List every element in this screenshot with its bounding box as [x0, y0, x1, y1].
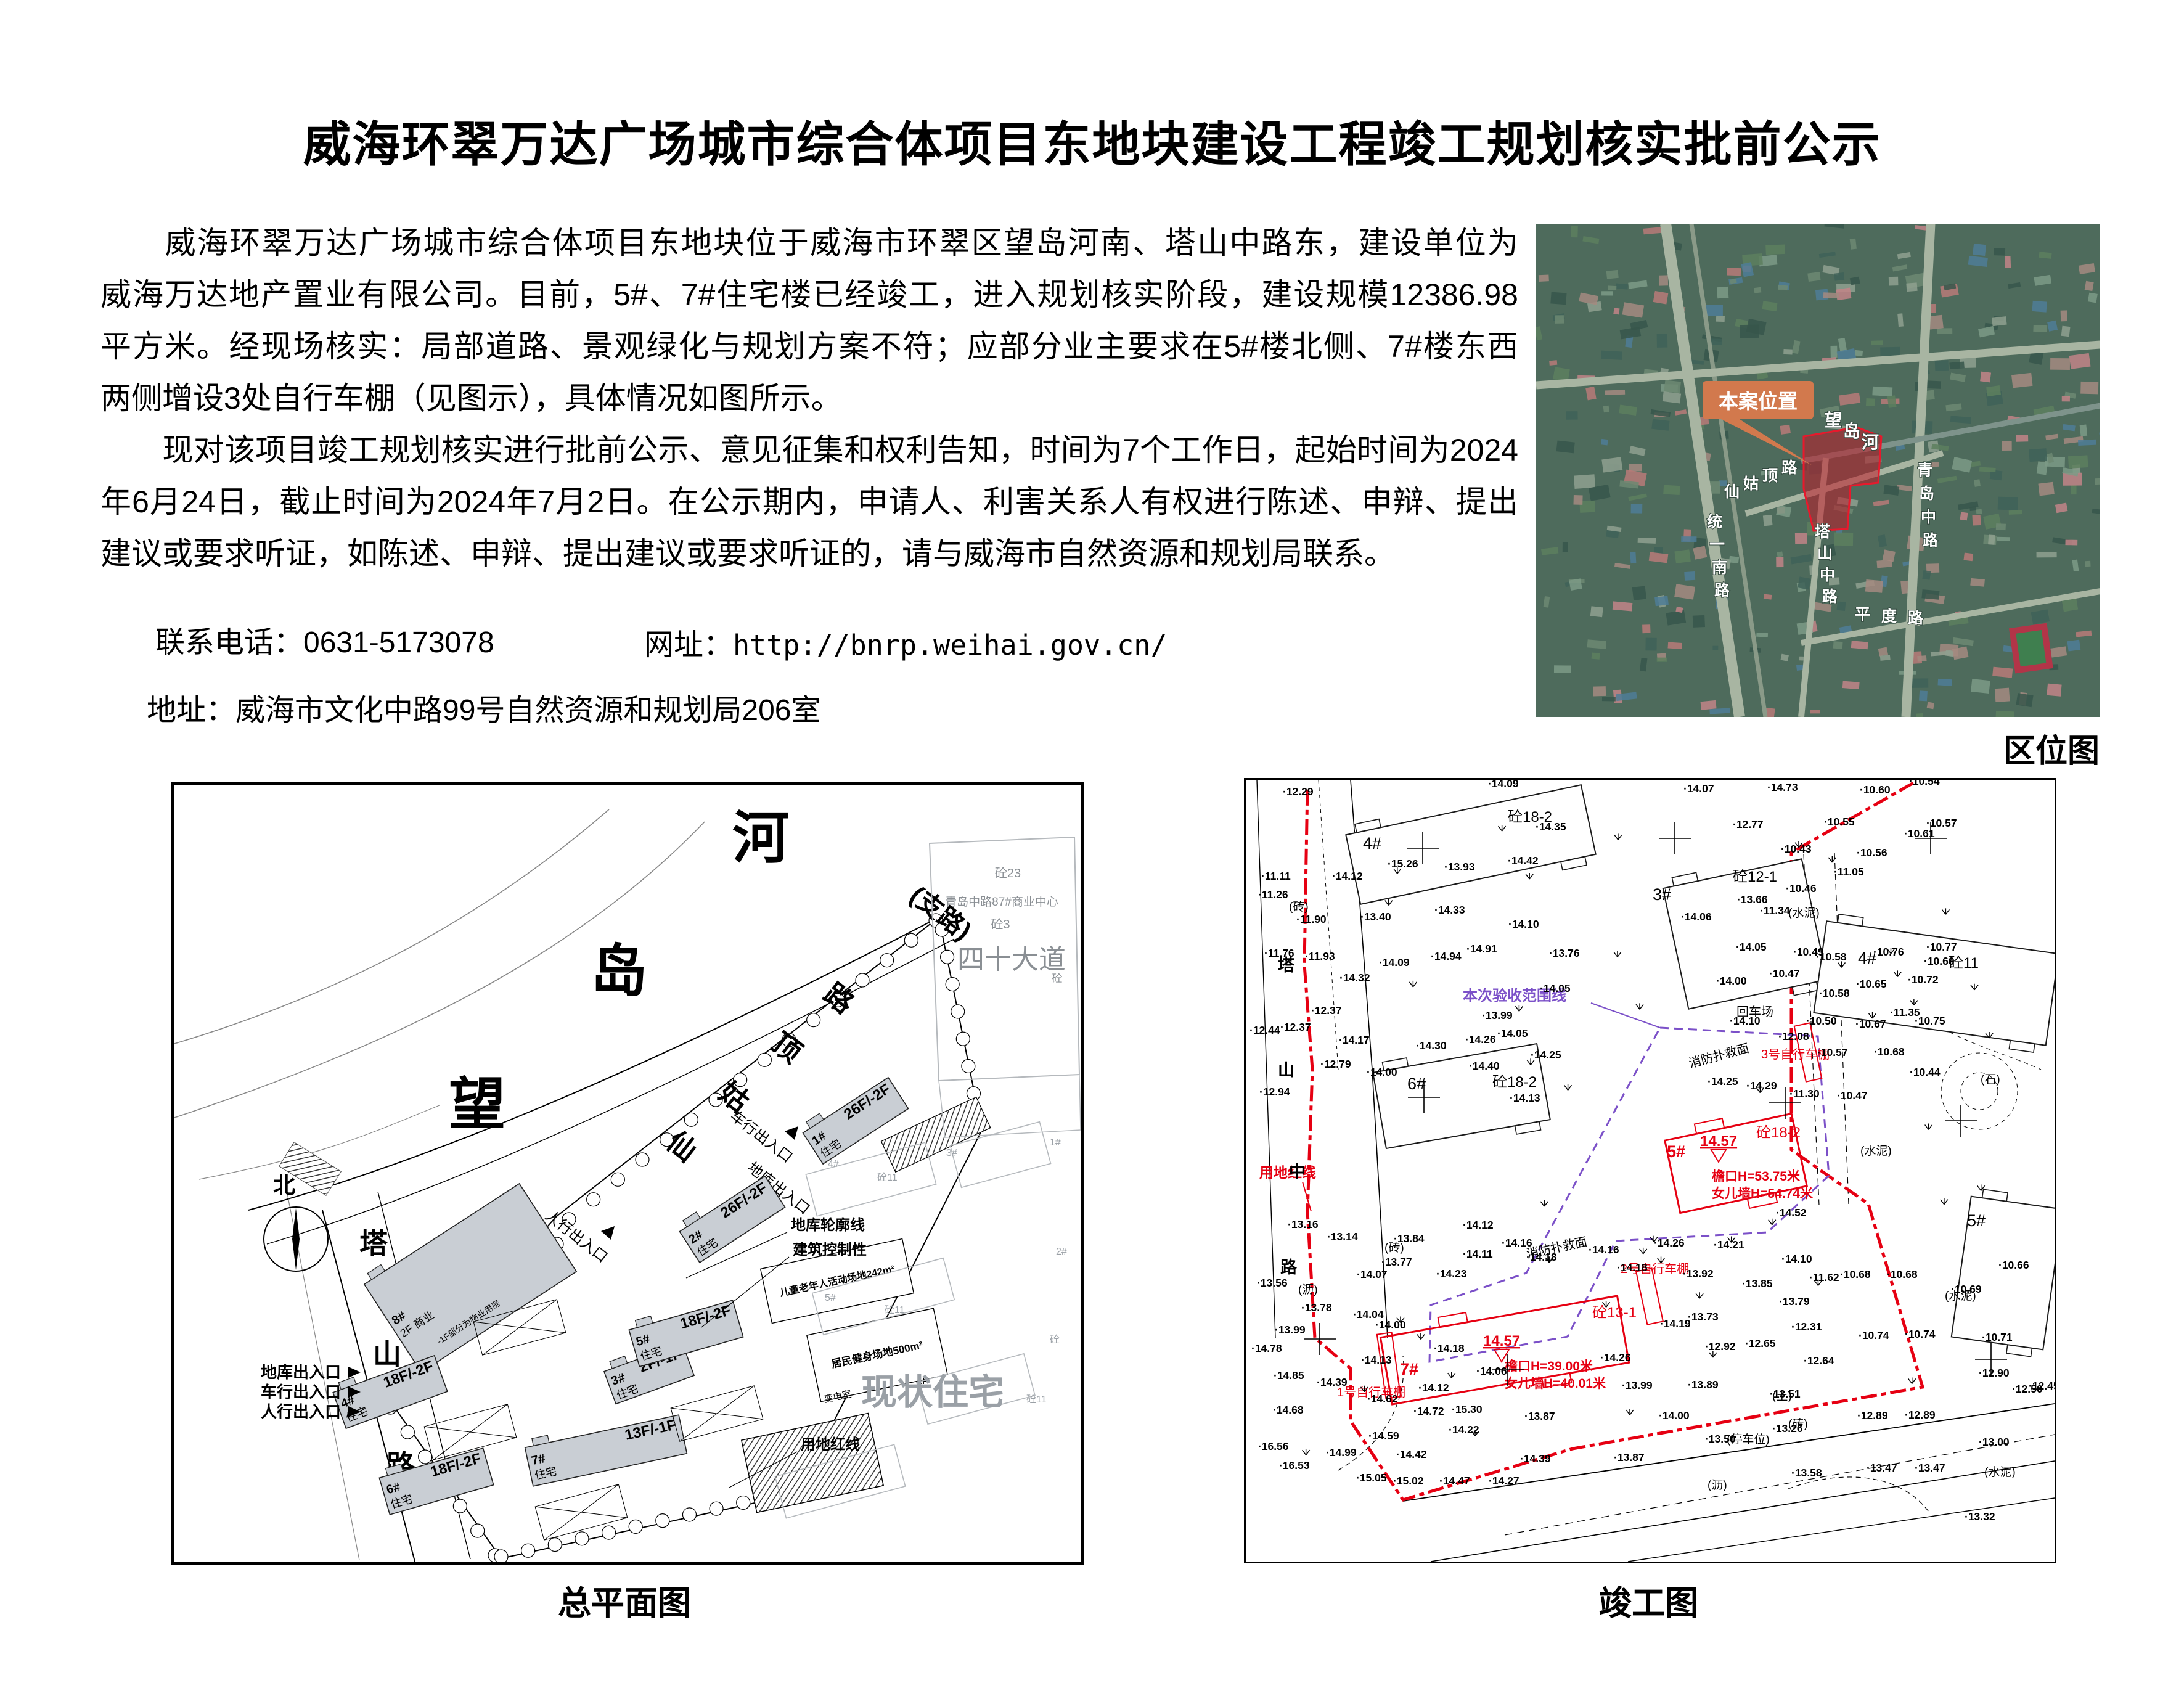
spot-elevation: ·10.56 [1857, 846, 1887, 859]
spot-elevation: ·14.09 [1379, 956, 1410, 968]
spot-elevation: ·12.77 [1733, 818, 1764, 830]
spot-elevation: ·12.08 [1778, 1030, 1809, 1042]
plan-callout-label: 建筑控制性 [793, 1241, 867, 1258]
river-label: 望 [449, 1073, 505, 1136]
spot-elevation: ·12.37 [1280, 1021, 1311, 1033]
spot-elevation: ·14.62 [1367, 1393, 1398, 1405]
spot-elevation: ·11.90 [1296, 913, 1327, 925]
spot-elevation: ·10.67 [1855, 1018, 1886, 1030]
map-road-label: 岛 [1843, 421, 1860, 441]
spot-elevation: ·13.58 [1791, 1467, 1822, 1479]
spot-elevation: ·14.73 [1767, 781, 1798, 793]
spot-elevation: ·10.43 [1781, 843, 1812, 855]
spot-elevation: ·13.89 [1688, 1378, 1719, 1391]
svg-text:14.57: 14.57 [1483, 1333, 1520, 1349]
spot-elevation: ·13.84 [1394, 1232, 1425, 1245]
paragraph-line: 年6月24日，截止时间为2024年7月2日。在公示期内，申请人、利害关系人有权进… [100, 476, 1518, 528]
surface-material-label: (石) [1981, 1073, 2000, 1086]
spot-elevation: ·14.12 [1332, 870, 1363, 882]
spot-elevation: ·13.92 [1683, 1267, 1714, 1280]
spot-elevation: ·10.47 [1837, 1089, 1868, 1102]
spot-elevation: ·14.10 [1730, 1015, 1761, 1027]
spot-elevation: ·10.44 [1910, 1066, 1941, 1078]
svg-text:7#: 7# [530, 1452, 546, 1468]
spot-elevation: ·12.94 [1259, 1086, 1290, 1098]
spot-elevation: ·12.29 [1283, 785, 1314, 798]
map-road-label: 平 [1855, 606, 1870, 623]
map-road-label: 山 [1817, 545, 1833, 562]
spot-elevation: ·14.42 [1508, 854, 1539, 867]
spot-elevation: ·13.87 [1614, 1451, 1645, 1464]
svg-text:檐口H=39.00米: 檐口H=39.00米 [1505, 1359, 1593, 1374]
spot-elevation: ·14.17 [1339, 1034, 1370, 1046]
spot-elevation: ·14.06 [1681, 911, 1712, 923]
spot-elevation: ·14.72 [1413, 1405, 1444, 1417]
public-notice-page: { "doc": { "title": "威海环翠万达广场城市综合体项目东地块建… [0, 0, 2184, 1699]
neighbor-label: 砼23 [995, 866, 1021, 880]
spot-elevation: ·14.16 [1502, 1237, 1532, 1249]
asbuilt-caption: 竣工图 [1244, 1576, 2053, 1624]
neighbor-house-label: 3# [946, 1148, 957, 1158]
spot-elevation: ·14.40 [1469, 1060, 1500, 1072]
spot-elevation: ·15.02 [1393, 1475, 1424, 1487]
contact-address: 地址：威海市文化中路99号自然资源和规划局206室 [147, 686, 820, 729]
paragraph-line: 威海环翠万达广场城市综合体项目东地块位于威海市环翠区望岛河南、塔山中路东，建设单… [100, 217, 1518, 269]
spot-elevation: ·11.93 [1305, 950, 1335, 962]
spot-elevation: ·15.05 [1356, 1472, 1387, 1484]
spot-elevation: ·10.61 [1904, 827, 1935, 840]
spot-elevation: ·14.99 [1326, 1446, 1357, 1459]
map-road-label: 望 [1825, 411, 1842, 430]
spot-elevation: ·13.50 [1705, 1433, 1736, 1445]
road-label: 中 [1289, 1163, 1306, 1181]
entrance-label: 车行出入口 [261, 1383, 341, 1401]
spot-elevation: ·10.65 [1856, 978, 1887, 990]
spot-elevation: ·12.45 [2029, 1380, 2055, 1392]
map-road-label: 中 [1921, 509, 1936, 526]
spot-elevation: ·13.77 [1381, 1256, 1412, 1268]
spot-elevation: ·10.58 [1816, 951, 1847, 963]
spot-elevation: ·10.55 [1824, 816, 1855, 828]
map-road-label: 统 [1707, 513, 1722, 531]
spot-elevation: ·13.93 [1444, 861, 1475, 873]
map-road-label: 路 [1923, 532, 1939, 549]
plan-building-2#: 2#住宅26F/-2F [676, 1170, 785, 1263]
map-road-label: 度 [1881, 607, 1897, 625]
spot-elevation: ·13.99 [1622, 1379, 1653, 1391]
spot-elevation: ·14.26 [1654, 1237, 1685, 1249]
spot-elevation: ·14.00 [1659, 1409, 1690, 1422]
spot-elevation: ·14.05 [1497, 1027, 1528, 1039]
neighbor-house-label: 2# [1056, 1247, 1067, 1257]
website-url[interactable]: http://bnrp.weihai.gov.cn/ [733, 629, 1167, 661]
spot-elevation: ·12.44 [1249, 1024, 1280, 1036]
spot-elevation: ·15.26 [1388, 858, 1418, 870]
spot-elevation: ·14.85 [1274, 1369, 1304, 1382]
spot-elevation: ·12.37 [1311, 1004, 1342, 1017]
spot-elevation: ·14.00 [1375, 1319, 1406, 1331]
plan-callout-label: 地库轮廓线 [791, 1216, 865, 1234]
svg-text:女儿墙H=40.01米: 女儿墙H=40.01米 [1505, 1376, 1606, 1391]
spot-elevation: ·14.07 [1357, 1268, 1388, 1280]
spot-elevation: ·14.18 [1434, 1342, 1465, 1354]
spot-elevation: ·14.13 [1510, 1092, 1540, 1104]
entrance-label: 地库出入口 [261, 1363, 341, 1382]
spot-elevation: ·14.25 [1531, 1049, 1561, 1061]
surface-material-label: (水泥) [1788, 906, 1820, 920]
map-road-label: 顶 [1762, 467, 1778, 485]
spot-elevation: ·16.53 [1279, 1459, 1310, 1472]
svg-text:3#: 3# [1653, 885, 1671, 904]
spot-elevation: ·10.77 [1926, 941, 1957, 953]
spot-elevation: ·14.07 [1683, 782, 1714, 795]
neighbor-house-label: 砼11 [885, 1304, 905, 1316]
spot-elevation: ·10.57 [1817, 1046, 1848, 1058]
neighbor-label: 砼3 [991, 917, 1010, 931]
spot-elevation: ·14.12 [1463, 1219, 1494, 1231]
road-label: 塔 [359, 1227, 388, 1259]
map-road-label: 路 [1781, 459, 1798, 477]
spot-elevation: ·13.51 [1770, 1388, 1801, 1400]
paragraph-line: 两侧增设3处自行车棚（见图示），具体情况如图所示。 [100, 372, 1518, 424]
spot-elevation: ·12.64 [1804, 1354, 1834, 1367]
spot-elevation: ·10.50 [1806, 1015, 1837, 1027]
site-plan-svg: 望岛河仙姑顶路(支路)塔山路人行出入口车行出入口地库出入口北1#住宅26F/-2… [174, 785, 1081, 1562]
spot-elevation: ·14.26 [1465, 1033, 1496, 1046]
spot-elevation: ·10.46 [1786, 882, 1817, 895]
spot-elevation: ·10.74 [1905, 1328, 1936, 1340]
svg-text:女儿墙H=54.74米: 女儿墙H=54.74米 [1712, 1186, 1814, 1201]
spot-elevation: ·14.78 [1251, 1342, 1282, 1354]
body-paragraph-2: 现对该项目竣工规划核实进行批前公示、意见征集和权利告知，时间为7个工作日，起始时… [100, 424, 1518, 579]
spot-elevation: ·11.30 [1789, 1087, 1820, 1100]
paragraph-line: 建议或要求听证，如陈述、申辩、提出建议或要求听证的，请与威海市自然资源和规划局联… [100, 528, 1518, 579]
spot-elevation: ·14.16 [1589, 1243, 1619, 1256]
road-label: 山 [373, 1338, 401, 1370]
road-label: 路 [1280, 1258, 1298, 1277]
spot-elevation: ·13.16 [1288, 1218, 1319, 1230]
map-road-label: 河 [1862, 433, 1879, 452]
map-road-label: 一 [1709, 536, 1725, 554]
svg-text:砼12-1: 砼12-1 [1733, 869, 1777, 885]
site-location-marker: 本案位置 [1719, 390, 1798, 412]
paragraph-line: 平方米。经现场核实：局部道路、景观绿化与规划方案不符；应部分业主要求在5#楼北侧… [100, 321, 1518, 372]
land-redline-label: 用地红线 [1259, 1165, 1316, 1181]
spot-elevation: ·14.32 [1339, 972, 1370, 984]
spot-elevation: ·13.66 [1737, 893, 1768, 906]
asbuilt-note: 消防扑救面 [1687, 1041, 1751, 1071]
spot-elevation: ·14.06 [1476, 1365, 1507, 1377]
spot-elevation: ·10.58 [1819, 987, 1850, 999]
spot-elevation: ·10.54 [1909, 780, 1940, 787]
map-road-label: 中 [1820, 567, 1835, 584]
north-label: 北 [273, 1173, 295, 1198]
body-paragraph-1: 威海环翠万达广场城市综合体项目东地块位于威海市环翠区望岛河南、塔山中路东，建设单… [100, 217, 1518, 424]
spot-elevation: ·10.74 [1859, 1329, 1889, 1341]
spot-elevation: ·10.66 [1998, 1259, 2029, 1271]
spot-elevation: ·11.05 [1834, 866, 1864, 878]
map-road-label: 路 [1822, 588, 1838, 605]
svg-text:14.57: 14.57 [1700, 1133, 1737, 1150]
site-plan-caption: 总平面图 [171, 1576, 1078, 1624]
contact-website: 网址：http://bnrp.weihai.gov.cn/ [644, 620, 1167, 663]
spot-elevation: ·14.22 [1449, 1423, 1479, 1436]
svg-text:檐口H=53.75米: 檐口H=53.75米 [1712, 1169, 1801, 1184]
map-road-label: 路 [1908, 610, 1924, 627]
map-road-label: 仙 [1724, 483, 1740, 501]
svg-text:7#: 7# [1400, 1360, 1418, 1378]
surface-material-label: (沥) [1298, 1283, 1318, 1296]
road-label: 山 [1278, 1061, 1294, 1079]
spot-elevation: ·12.92 [1705, 1340, 1736, 1353]
spot-elevation: ·14.05 [1736, 941, 1767, 953]
surface-material-label: (沥) [1708, 1478, 1727, 1492]
svg-text:5#: 5# [1967, 1211, 1986, 1230]
spot-elevation: ·14.52 [1776, 1206, 1807, 1219]
spot-elevation: ·14.05 [1540, 982, 1571, 994]
neighbor-house-label: 4# [828, 1159, 839, 1169]
spot-elevation: ·10.68 [1887, 1268, 1918, 1280]
spot-elevation: ·11.11 [1261, 870, 1291, 882]
svg-text:4#: 4# [1363, 834, 1381, 853]
location-map: 望岛河仙姑顶路统一南路塔山中路青岛中路平度路本案位置 [1536, 224, 2100, 717]
spot-elevation: ·13.79 [1779, 1295, 1810, 1308]
map-road-label: 岛 [1919, 485, 1934, 502]
spot-elevation: ·14.35 [1536, 821, 1566, 833]
spot-elevation: ·11.62 [1809, 1271, 1839, 1283]
river-label: 河 [732, 807, 789, 870]
spot-elevation: ·14.30 [1416, 1039, 1447, 1052]
spot-elevation: ·16.56 [1258, 1440, 1289, 1452]
spot-elevation: ·14.26 [1600, 1351, 1631, 1364]
neighbor-label: 青岛中路87#商业中心 [945, 895, 1058, 909]
spot-elevation: ·11.26 [1258, 888, 1288, 901]
spot-elevation: ·13.14 [1327, 1230, 1358, 1243]
paragraph-line: 威海万达地产置业有限公司。目前，5#、7#住宅楼已经竣工，进入规划核实阶段，建设… [100, 269, 1518, 321]
spot-elevation: ·10.75 [1915, 1015, 1945, 1027]
spot-elevation: ·14.25 [1708, 1075, 1738, 1087]
neighbor-house-label: 5# [825, 1293, 836, 1303]
location-map-image: 望岛河仙姑顶路统一南路塔山中路青岛中路平度路本案位置 [1536, 224, 2100, 717]
spot-elevation: ·14.12 [1418, 1382, 1449, 1394]
svg-text:5#: 5# [1667, 1142, 1685, 1161]
verified-building-5# [1663, 1104, 1809, 1222]
map-road-label: 塔 [1815, 523, 1831, 541]
asbuilt-building-4# [1344, 780, 1597, 912]
spot-elevation: ·13.47 [1867, 1462, 1897, 1474]
spot-elevation: ·13.99 [1482, 1009, 1513, 1021]
spot-elevation: ·14.39 [1317, 1376, 1348, 1388]
svg-text:砼18-2: 砼18-2 [1492, 1074, 1537, 1091]
spot-elevation: ·14.09 [1488, 780, 1519, 790]
spot-elevation: ·14.10 [1781, 1253, 1812, 1265]
spot-elevation: ·14.00 [1716, 975, 1747, 987]
spot-elevation: ·13.47 [1915, 1462, 1945, 1474]
location-map-caption: 区位图 [1849, 725, 2100, 771]
contact-phone: 联系电话：0631-5173078 [155, 618, 494, 661]
spot-elevation: ·10.76 [1873, 946, 1904, 958]
neighbor-house-label: 1# [1050, 1137, 1061, 1148]
spot-elevation: ·10.60 [1924, 955, 1955, 967]
road-label: 仙 [661, 1125, 703, 1168]
spot-elevation: ·14.47 [1439, 1475, 1470, 1487]
river-label: 岛 [591, 940, 647, 1003]
spot-elevation: ·13.78 [1301, 1301, 1332, 1314]
spot-elevation: ·10.69 [1951, 1283, 1982, 1295]
spot-elevation: ·13.85 [1742, 1277, 1773, 1290]
spot-elevation: ·13.40 [1360, 911, 1391, 923]
spot-elevation: ·14.42 [1396, 1448, 1427, 1460]
neighbor-house-label: 砼 [1050, 1334, 1060, 1345]
spot-elevation: ·14.10 [1508, 918, 1539, 930]
spot-elevation: ·13.00 [1979, 1436, 2010, 1448]
spot-elevation: ·10.71 [1982, 1331, 2013, 1343]
spot-elevation: ·14.13 [1361, 1354, 1392, 1366]
neighbor-label: 砼 [1052, 973, 1063, 985]
spot-elevation: ·11.76 [1264, 947, 1294, 959]
plan-building-7#: 7#住宅13F/-1F [523, 1407, 687, 1486]
surface-material-label: (水泥) [1860, 1144, 1892, 1158]
entrance-label: 车行出入口 [727, 1107, 795, 1166]
map-road-label: 青 [1917, 462, 1932, 479]
spot-elevation: ·14.23 [1436, 1267, 1467, 1280]
asbuilt-svg: 本次验收范围线用地红线塔山中路4#砼18-23#砼12-16#砼18-24#砼1… [1246, 780, 2055, 1562]
svg-text:砼18-2: 砼18-2 [1756, 1124, 1801, 1141]
spot-elevation: ·14.19 [1660, 1317, 1691, 1330]
spot-elevation: ·12.89 [1857, 1409, 1888, 1422]
paragraph-line: 现对该项目竣工规划核实进行批前公示、意见征集和权利告知，时间为7个工作日，起始时… [100, 424, 1518, 476]
entrance-label: 人行出入口 [261, 1402, 341, 1421]
page-title: 威海环翠万达广场城市综合体项目东地块建设工程竣工规划核实批前公示 [0, 106, 2184, 175]
spot-elevation: ·14.59 [1368, 1430, 1399, 1442]
spot-elevation: ·10.47 [1769, 967, 1800, 980]
spot-elevation: ·10.68 [1874, 1046, 1905, 1058]
website-label: 网址： [644, 629, 733, 661]
spot-elevation: ·13.26 [1772, 1422, 1803, 1435]
spot-elevation: ·12.89 [1905, 1409, 1936, 1421]
spot-elevation: ·12.79 [1320, 1058, 1351, 1070]
spot-elevation: ·14.33 [1434, 904, 1465, 916]
spot-elevation: ·14.18 [1617, 1261, 1648, 1274]
surface-material-label: (砖) [1289, 900, 1309, 914]
spot-elevation: ·14.68 [1273, 1404, 1304, 1416]
spot-elevation: ·14.00 [1367, 1066, 1397, 1078]
surface-material-label: (水泥) [1984, 1465, 2016, 1479]
spot-elevation: ·10.60 [1860, 784, 1891, 796]
neighbor-house-label: 砼11 [1026, 1394, 1047, 1405]
spot-elevation: ·13.56 [1257, 1277, 1288, 1289]
spot-elevation: ·13.73 [1688, 1311, 1719, 1323]
spot-elevation: ·14.29 [1746, 1079, 1777, 1092]
site-plan-drawing: 望岛河仙姑顶路(支路)塔山路人行出入口车行出入口地库出入口北1#住宅26F/-2… [171, 782, 1084, 1565]
road-label: 顶 [766, 1026, 808, 1069]
svg-text:6#: 6# [1407, 1075, 1426, 1093]
spot-elevation: ·14.39 [1520, 1452, 1551, 1465]
svg-text:砼13-1: 砼13-1 [1592, 1304, 1637, 1321]
spot-elevation: ·14.21 [1714, 1238, 1744, 1251]
spot-elevation: ·14.27 [1489, 1475, 1519, 1487]
spot-elevation: ·12.65 [1745, 1337, 1776, 1349]
spot-elevation: ·10.68 [1840, 1268, 1871, 1280]
map-road-label: 南 [1712, 559, 1727, 576]
spot-elevation: ·12.31 [1791, 1320, 1822, 1333]
asbuilt-drawing: 本次验收范围线用地红线塔山中路4#砼18-23#砼12-16#砼18-24#砼1… [1244, 778, 2056, 1563]
neighbor-label: 四十大道 [957, 944, 1066, 975]
spot-elevation: ·13.32 [1965, 1510, 1995, 1523]
spot-elevation: ·13.99 [1275, 1324, 1306, 1336]
spot-elevation: ·14.18 [1526, 1251, 1557, 1263]
spot-elevation: ·15.30 [1452, 1403, 1483, 1415]
spot-elevation: ·13.76 [1549, 947, 1580, 959]
spot-elevation: ·13.87 [1524, 1410, 1555, 1422]
map-road-label: 姑 [1743, 475, 1759, 493]
plan-callout-label: 用地红线 [801, 1436, 860, 1453]
spot-elevation: ·12.90 [1979, 1367, 2010, 1379]
spot-elevation: ·14.11 [1463, 1248, 1493, 1260]
map-road-label: 路 [1714, 582, 1730, 599]
spot-elevation: ·14.91 [1466, 943, 1497, 955]
spot-elevation: ·14.94 [1431, 950, 1462, 962]
spot-elevation: ·11.34 [1760, 904, 1790, 917]
neighbor-house-label: 砼11 [877, 1172, 898, 1183]
existing-housing-label: 现状住宅 [861, 1372, 1004, 1412]
spot-elevation: ·10.72 [1908, 973, 1939, 986]
